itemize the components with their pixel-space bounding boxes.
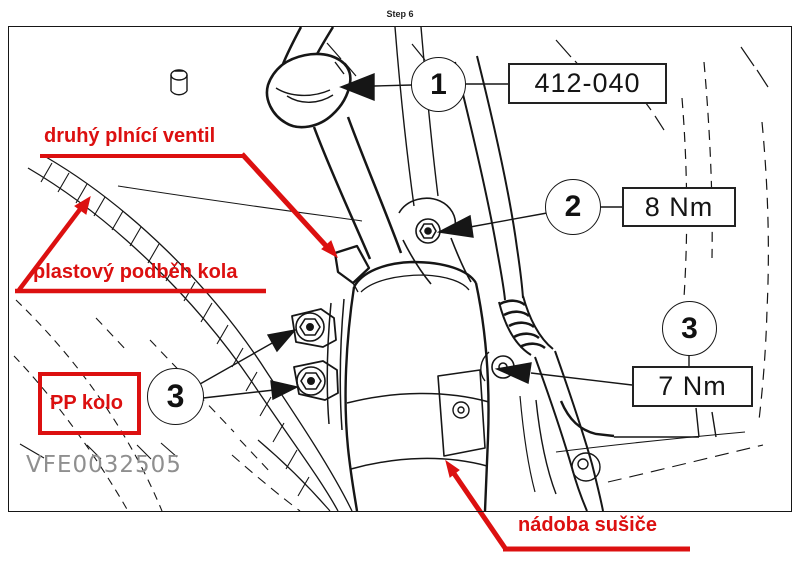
callout-number-3-right: 3 [681, 312, 698, 346]
label-drier-container: nádoba sušiče [518, 514, 657, 537]
part-number-text: 412-040 [534, 68, 640, 99]
torque-box-7nm: 7 Nm [632, 366, 753, 407]
label-pp-wheel: PP kolo [50, 392, 123, 415]
callout-circle-3-left: 3 [147, 368, 204, 425]
torque-7nm-text: 7 Nm [658, 371, 727, 402]
callout-circle-2: 2 [545, 179, 601, 235]
pp-wheel-box: PP kolo [38, 372, 141, 435]
callout-number-2: 2 [565, 190, 582, 224]
step-label: Step 6 [0, 9, 800, 19]
callout-circle-3-right: 3 [662, 301, 717, 356]
label-second-fill-valve: druhý plnící ventil [44, 125, 215, 148]
torque-box-8nm: 8 Nm [622, 187, 736, 227]
callout-circle-1: 1 [411, 57, 466, 112]
part-number-box: 412-040 [508, 63, 667, 104]
label-plastic-wheel-arch: plastový podběh kola [33, 261, 237, 284]
service-manual-figure: Step 6 1 2 3 3 412-040 8 Nm 7 Nm druhý p… [0, 0, 800, 565]
figure-code: VFE0032505 [26, 452, 182, 478]
torque-8nm-text: 8 Nm [645, 192, 714, 223]
callout-number-1: 1 [430, 68, 447, 102]
callout-number-3-left: 3 [167, 378, 185, 415]
